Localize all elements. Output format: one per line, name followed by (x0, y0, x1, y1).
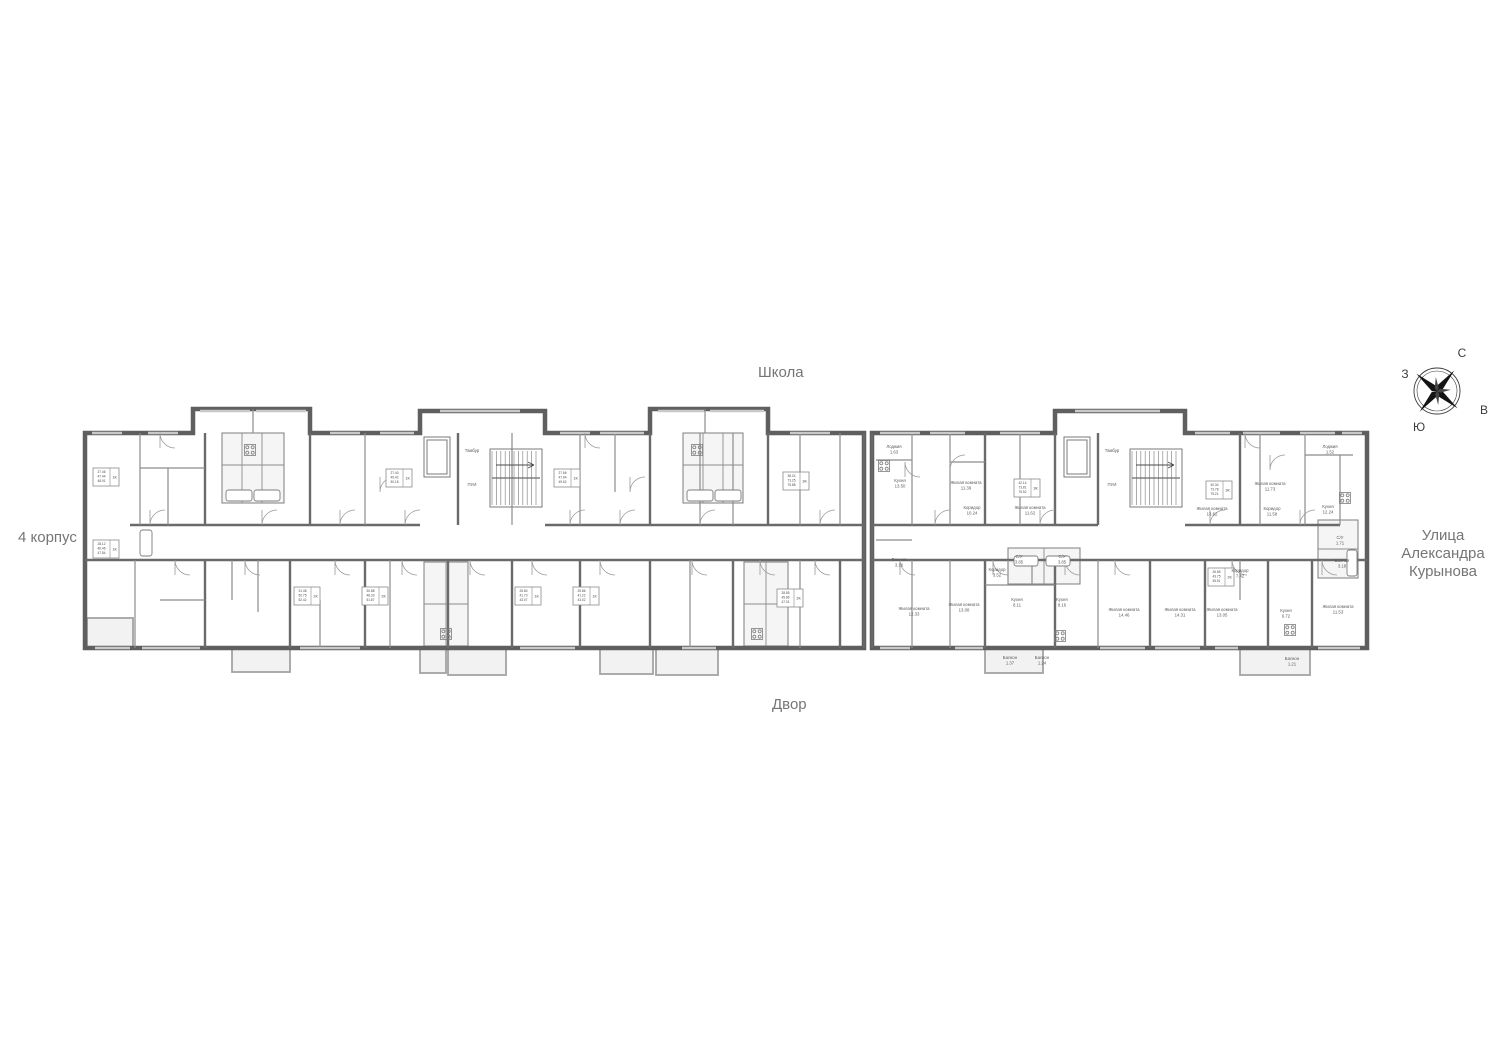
stamp-area-value: 73.81 (1019, 485, 1027, 489)
room-label: Кухня12.24 (1322, 504, 1334, 514)
stamp-area-value: 27.46 (98, 470, 106, 474)
stamp-area-value: 47.44 (98, 474, 106, 478)
apartment-stamp: 26.8543.7545.512К (1208, 568, 1234, 586)
room-label: С/У3.85 (1058, 554, 1067, 564)
stamp-area-value: 26.85 (1213, 570, 1221, 574)
stamp-area-value: 75.21 (1211, 492, 1219, 496)
stamp-area-value: 48.91 (98, 479, 106, 483)
stamp-area-value: 31.48 (299, 589, 307, 593)
compass-east-label: В (1480, 403, 1488, 417)
stamp-area-value: 38.24 (788, 474, 796, 478)
floor-plan-drawing: 27.4647.4448.911К28.1246.4647.841К27.404… (0, 0, 1500, 1060)
room-label: ПУИ (1108, 482, 1117, 487)
apartment-stamp: 40.3473.7875.213К (1206, 481, 1232, 499)
stamp-area-value: 49.62 (559, 480, 567, 484)
floor-plan-page: Школа 4 корпус Улица Александра Курынова… (0, 0, 1500, 1060)
stamp-area-value: 49.42 (391, 475, 399, 479)
stamp-area-value: 47.94 (559, 475, 567, 479)
apartment-stamp: 30.8848.3351.872К (362, 587, 388, 605)
room-label: С/У3.85 (1015, 554, 1024, 564)
room-label: С/У1.71 (1336, 535, 1345, 545)
stamp-area-value: 50.75 (299, 593, 307, 597)
stamp-area-value: 25.86 (578, 589, 586, 593)
stamp-area-value: 75.88 (788, 483, 796, 487)
apartment-stamp: 27.4049.4250.181К (386, 469, 412, 487)
stamp-area-value: 25.80 (520, 589, 528, 593)
apartment-stamp: 25.8041.7343.071К (515, 587, 541, 605)
stamp-area-value: 73.25 (788, 478, 796, 482)
apartment-stamp: 27.6647.9449.621К (554, 469, 580, 487)
stamp-area-value: 48.33 (367, 593, 375, 597)
stamp-area-value: 43.75 (1213, 574, 1221, 578)
apartment-stamp: 25.8641.2243.021К (573, 587, 599, 605)
stamp-area-value: 43.07 (520, 598, 528, 602)
stamp-area-value: 50.18 (391, 480, 399, 484)
stamp-area-value: 27.66 (559, 471, 567, 475)
stamp-area-value: 30.88 (367, 589, 375, 593)
room-label: Кухня13.50 (894, 478, 906, 488)
stamp-area-value: 42.14 (1019, 481, 1027, 485)
room-label: Тамбур (465, 448, 480, 453)
stamp-area-value: 28.12 (98, 542, 106, 546)
stamp-area-value: 46.46 (98, 546, 106, 550)
stamp-area-value: 40.34 (1211, 483, 1219, 487)
compass-north-label: С (1458, 346, 1467, 360)
apartment-stamp: 27.4647.4448.911К (93, 468, 119, 486)
stamp-area-value: 47.84 (98, 551, 106, 555)
room-label: ПУИ (468, 482, 477, 487)
stamp-area-value: 45.86 (782, 595, 790, 599)
stamp-area-value: 45.51 (1213, 579, 1221, 583)
room-label: Тамбур (1105, 448, 1120, 453)
apartment-stamp: 28.1246.4647.841К (93, 540, 119, 558)
stamp-area-value: 27.40 (391, 471, 399, 475)
compass-icon: С З В Ю (1399, 346, 1488, 434)
stamp-area-value: 41.73 (520, 593, 528, 597)
stamp-area-value: 41.22 (578, 593, 586, 597)
compass-west-label: З (1401, 367, 1408, 381)
stamp-area-value: 43.02 (578, 598, 586, 602)
apartment-stamp: 38.2473.2575.883К (783, 472, 809, 490)
apartment-stamp: 42.1473.8175.523К (1014, 479, 1040, 497)
stamp-area-value: 51.87 (367, 598, 375, 602)
stamp-area-value: 28.85 (782, 591, 790, 595)
stamp-area-value: 47.01 (782, 600, 790, 604)
apartment-stamp: 31.4850.7552.422К (294, 587, 320, 605)
stamp-area-value: 75.52 (1019, 490, 1027, 494)
apartment-stamp: 28.8545.8647.012К (777, 589, 803, 607)
stamp-area-value: 73.78 (1211, 487, 1219, 491)
stamp-area-value: 52.42 (299, 598, 307, 602)
compass-south-label: Ю (1413, 420, 1425, 434)
room-label: Балкон1.24 (1035, 655, 1050, 665)
